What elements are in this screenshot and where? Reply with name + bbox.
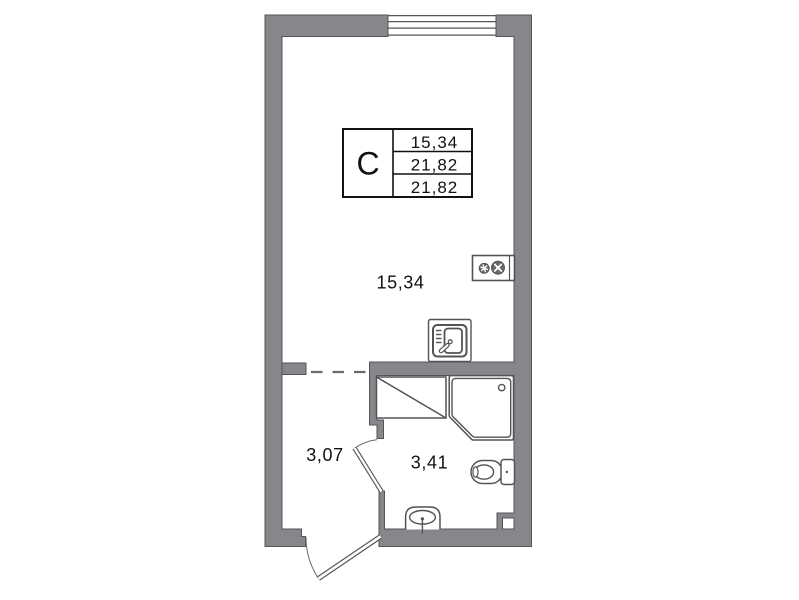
svg-text:С: С [356, 146, 379, 182]
svg-text:15,34: 15,34 [376, 273, 424, 293]
svg-text:3,07: 3,07 [306, 445, 343, 465]
svg-text:15,34: 15,34 [411, 133, 459, 152]
svg-text:3,41: 3,41 [411, 453, 448, 473]
svg-text:21,82: 21,82 [411, 156, 459, 175]
svg-text:21,82: 21,82 [411, 178, 459, 197]
